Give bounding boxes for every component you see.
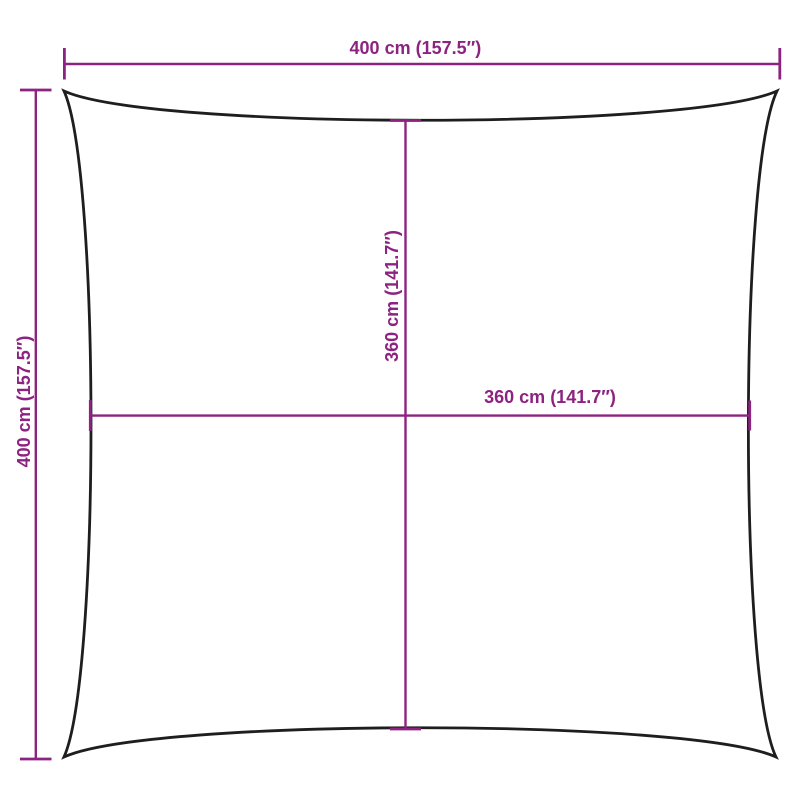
svg-text:400 cm (157.5″): 400 cm (157.5″) — [350, 38, 482, 58]
svg-text:400 cm (157.5″): 400 cm (157.5″) — [14, 336, 34, 468]
svg-text:360 cm (141.7″): 360 cm (141.7″) — [382, 230, 402, 362]
svg-text:360 cm (141.7″): 360 cm (141.7″) — [484, 387, 616, 407]
